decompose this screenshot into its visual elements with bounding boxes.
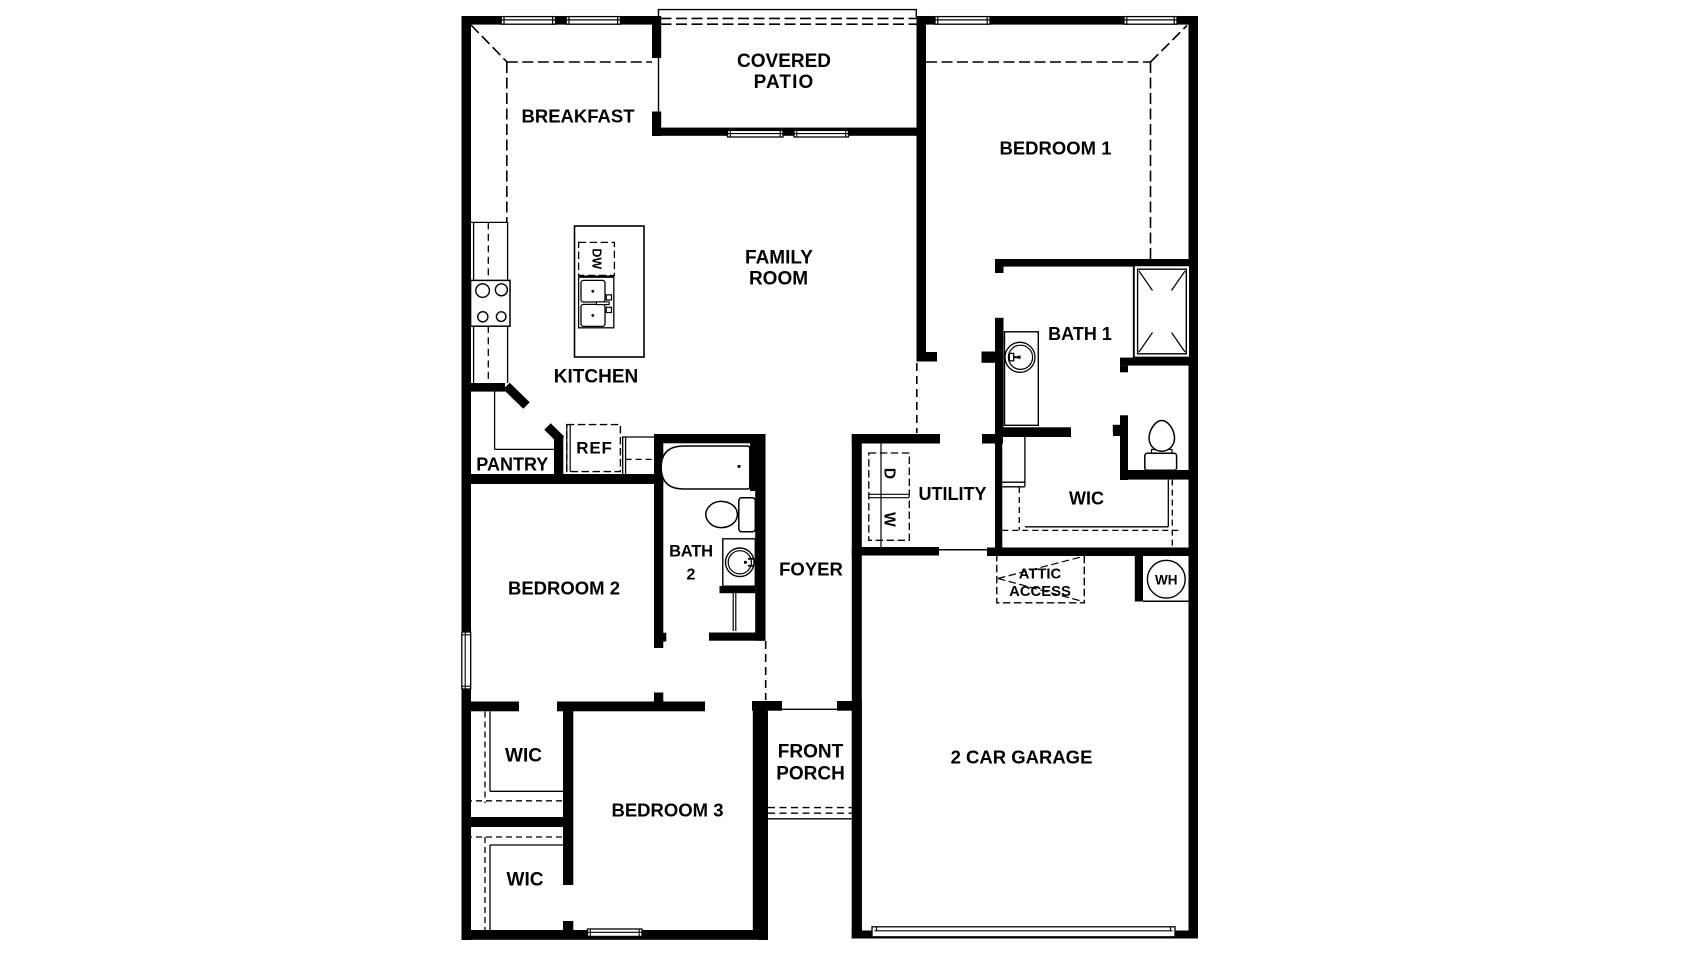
svg-text:FRONT: FRONT: [778, 742, 844, 763]
svg-text:2: 2: [687, 567, 696, 584]
svg-text:BEDROOM 1: BEDROOM 1: [999, 138, 1111, 159]
svg-text:WIC: WIC: [507, 870, 544, 891]
svg-text:WH: WH: [1155, 573, 1178, 588]
svg-text:ACCESS: ACCESS: [1009, 584, 1071, 600]
svg-text:ATTIC: ATTIC: [1019, 567, 1062, 583]
svg-text:BEDROOM 2: BEDROOM 2: [508, 578, 620, 599]
svg-text:FAMILY: FAMILY: [745, 248, 813, 269]
svg-text:BATH: BATH: [669, 543, 713, 561]
svg-text:WIC: WIC: [505, 746, 542, 767]
svg-text:FOYER: FOYER: [779, 559, 843, 580]
svg-text:BREAKFAST: BREAKFAST: [521, 106, 635, 127]
svg-text:PANTRY: PANTRY: [476, 455, 548, 475]
svg-text:D: D: [881, 468, 898, 479]
svg-text:2 CAR GARAGE: 2 CAR GARAGE: [951, 747, 1093, 768]
svg-text:W: W: [881, 512, 898, 527]
svg-text:COVERED: COVERED: [737, 51, 831, 72]
svg-text:WIC: WIC: [1069, 489, 1104, 509]
svg-text:BATH 1: BATH 1: [1048, 324, 1112, 344]
svg-text:KITCHEN: KITCHEN: [554, 367, 638, 388]
svg-text:PORCH: PORCH: [776, 764, 845, 785]
svg-text:DW: DW: [589, 248, 603, 269]
svg-text:BEDROOM 3: BEDROOM 3: [611, 800, 723, 821]
svg-text:ROOM: ROOM: [749, 269, 808, 290]
svg-text:REF: REF: [576, 439, 612, 458]
svg-text:PATIO: PATIO: [754, 72, 815, 93]
svg-text:UTILITY: UTILITY: [919, 484, 987, 504]
